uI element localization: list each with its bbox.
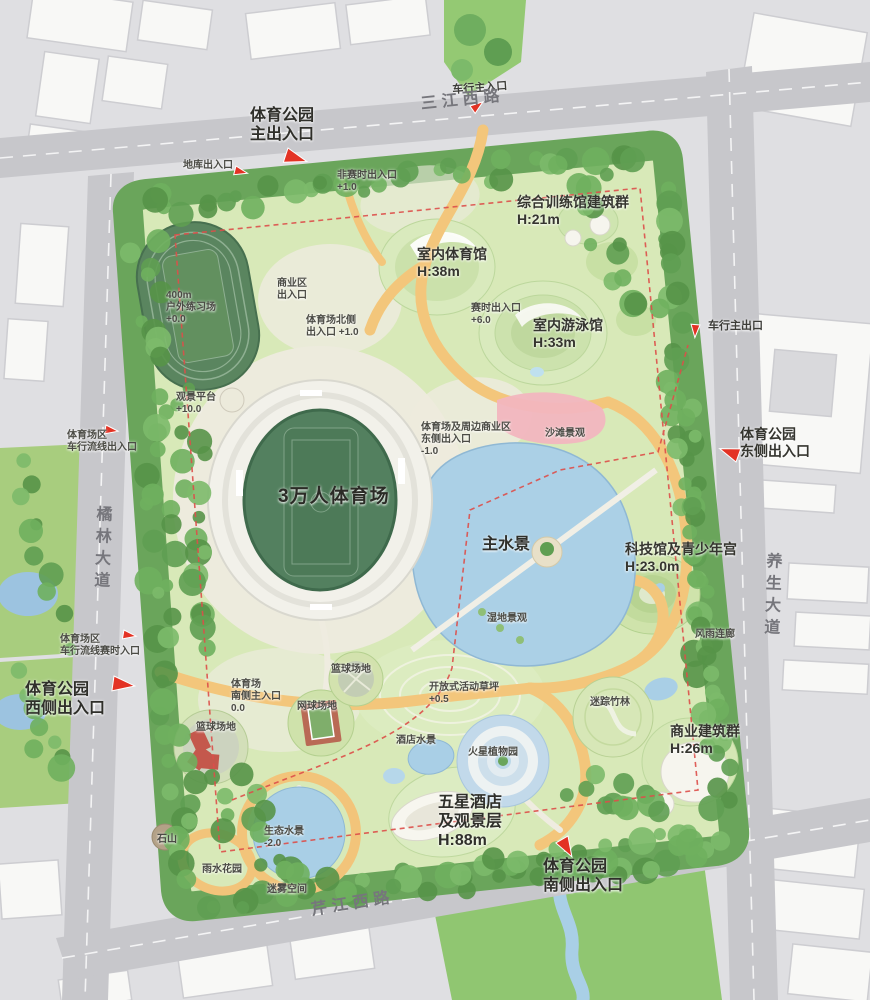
site-plan-graphics bbox=[0, 0, 870, 1000]
stadium bbox=[208, 380, 432, 620]
main-lake bbox=[412, 443, 635, 666]
site-plan-map: 体育公园 主出入口 车行主入口 地库出入口 非赛时出入口 +1.0 综合训练馆建… bbox=[0, 0, 870, 1000]
bamboo-maze bbox=[573, 677, 653, 757]
mars-botanic-garden bbox=[457, 715, 549, 807]
viewing-platform-disc bbox=[220, 388, 244, 412]
